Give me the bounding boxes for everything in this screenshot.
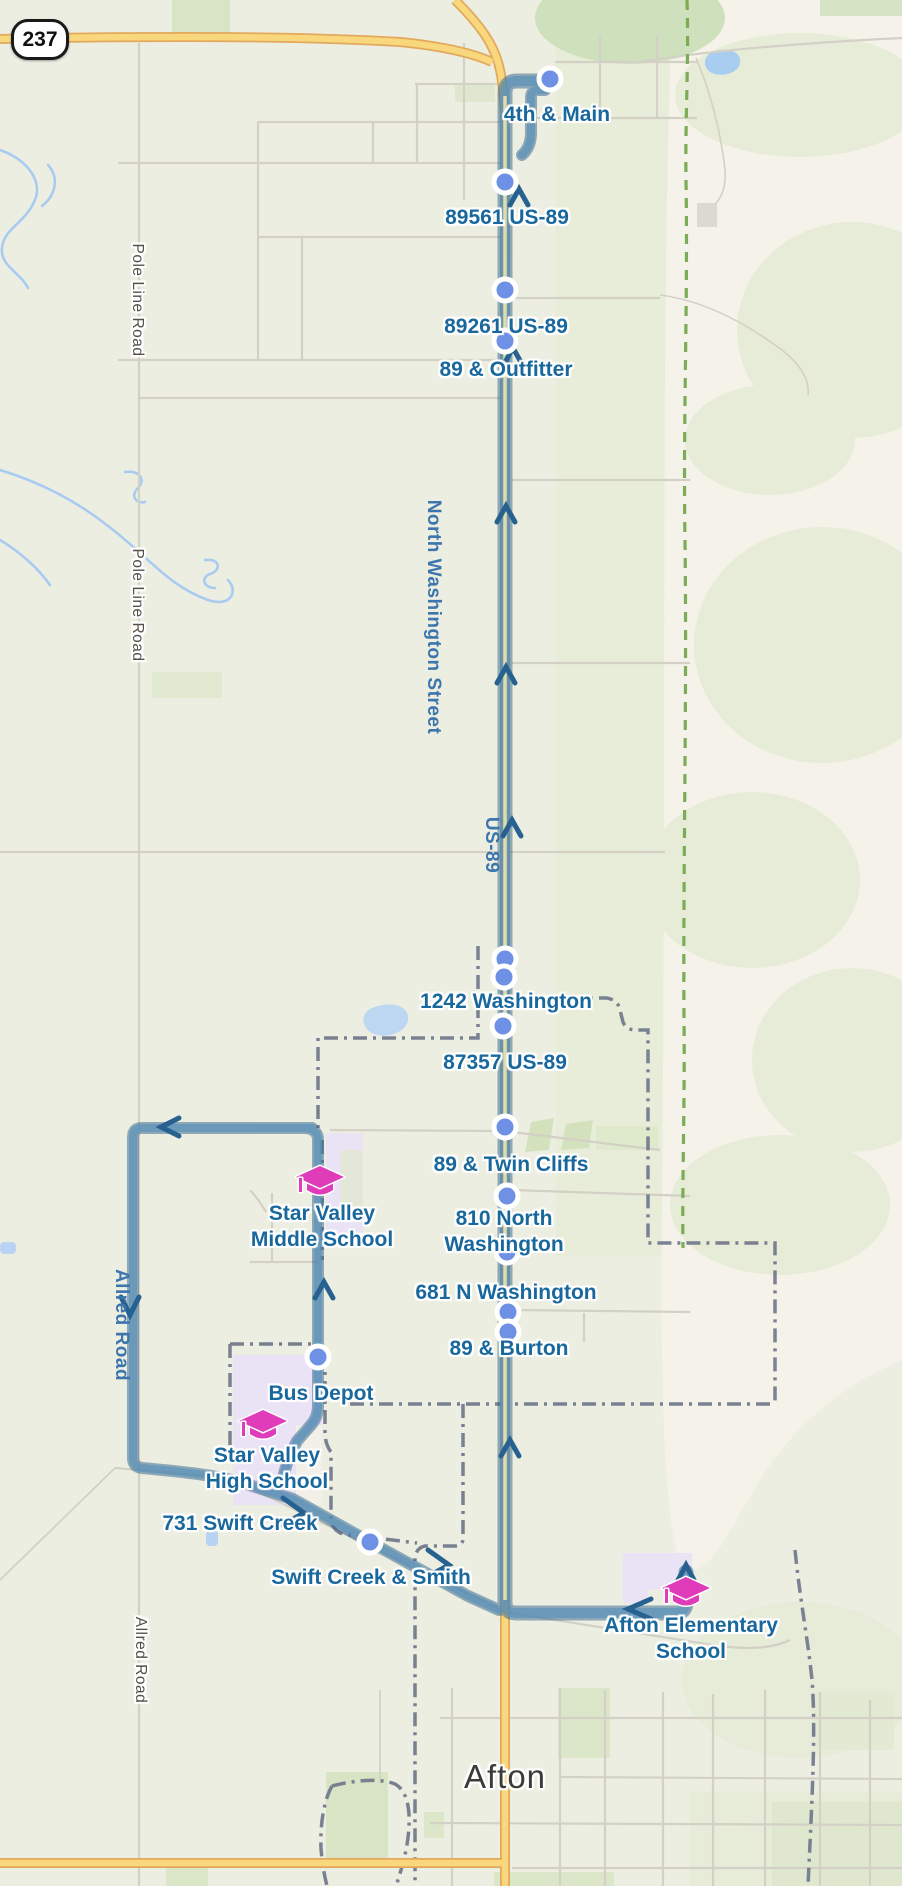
highway-shield: 237 xyxy=(11,19,69,60)
stop-marker-810-north-washington[interactable] xyxy=(496,1185,518,1207)
stop-marker[interactable] xyxy=(493,966,515,988)
stop-marker-89-burton[interactable] xyxy=(497,1321,519,1343)
forest-patch xyxy=(820,0,902,16)
map-base-layer xyxy=(0,0,902,1886)
highway-shield-number: 237 xyxy=(22,28,57,52)
stop-marker-89-twin-cliffs[interactable] xyxy=(494,1116,516,1138)
stop-marker-bus-depot[interactable] xyxy=(307,1346,329,1368)
building xyxy=(697,203,717,227)
stop-marker-89261-us89[interactable] xyxy=(494,279,516,301)
stop-marker-89-outfitter[interactable] xyxy=(494,330,516,352)
stop-marker-89561-us89[interactable] xyxy=(494,171,516,193)
stop-marker-4th-and-main[interactable] xyxy=(539,68,561,90)
stop-marker-swift-creek-smith[interactable] xyxy=(359,1531,381,1553)
stop-marker-681-n-washington[interactable] xyxy=(496,1241,518,1263)
map-canvas[interactable]: 237 4th & Main 89561 US-89 89261 US-89 8… xyxy=(0,0,902,1886)
stop-marker-87357-us89[interactable] xyxy=(492,1015,514,1037)
